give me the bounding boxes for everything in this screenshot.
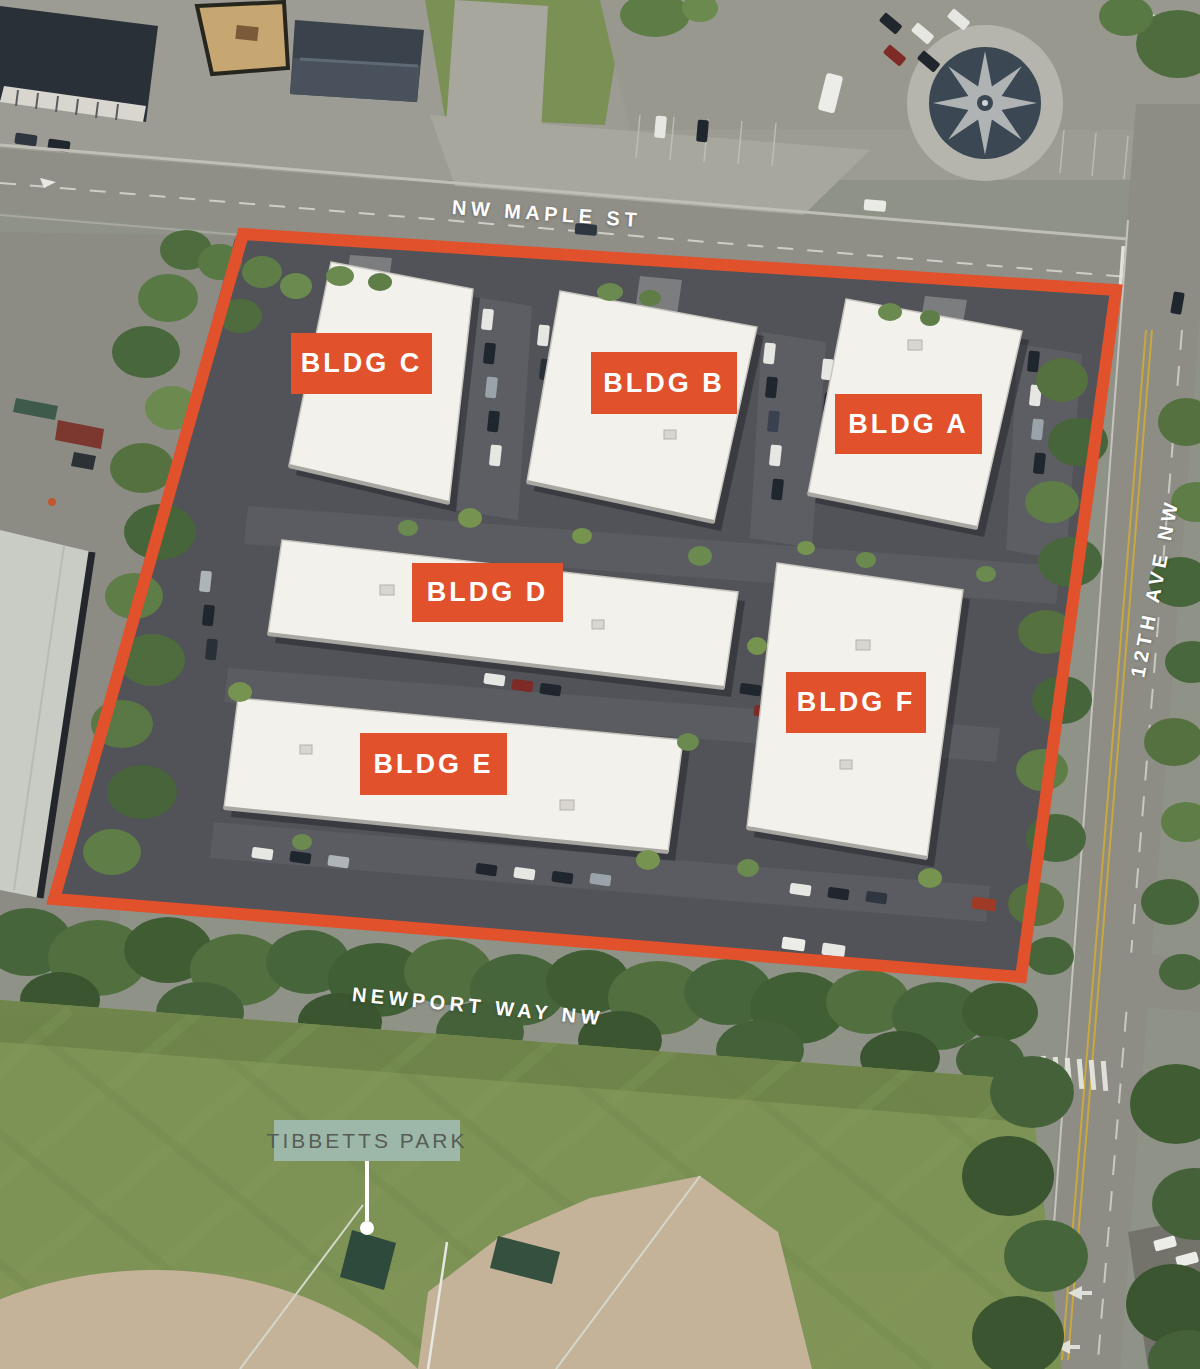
bldg-d-label: BLDG D xyxy=(412,563,563,622)
bldg-b-label: BLDG B xyxy=(591,352,737,414)
aerial-site-map: BLDG C BLDG B BLDG A BLDG D BLDG F BLDG … xyxy=(0,0,1200,1369)
park-label-leader-dot xyxy=(360,1221,374,1235)
bldg-c-label: BLDG C xyxy=(291,333,432,394)
bldg-f-label: BLDG F xyxy=(786,672,926,733)
bldg-a-label: BLDG A xyxy=(835,394,982,454)
park-label-leader-line xyxy=(365,1161,369,1221)
tibbetts-park-label: TIBBETTS PARK xyxy=(274,1120,460,1161)
bldg-e-label: BLDG E xyxy=(360,733,507,795)
